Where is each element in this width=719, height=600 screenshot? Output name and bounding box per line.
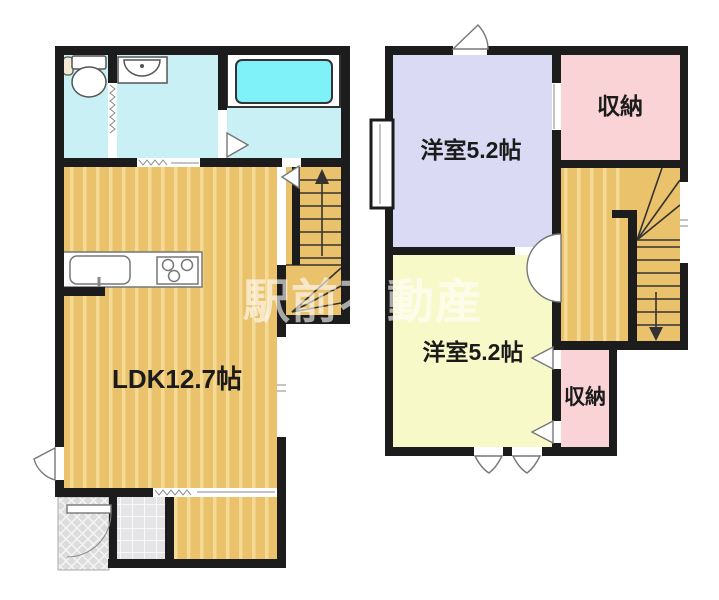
top-window-icon xyxy=(453,25,488,49)
bathroom-doorway xyxy=(218,110,227,158)
floorplan-image: LDK12.7帖 xyxy=(0,0,719,600)
watermark-text: 駅前不動産 xyxy=(243,275,483,328)
awning-window-icon xyxy=(475,456,502,473)
room-label-closet-bottom: 収納 xyxy=(564,385,606,409)
washbasin-icon xyxy=(118,57,167,83)
window-icon xyxy=(277,337,286,437)
room-label-bedroom-bottom: 洋室5.2帖 xyxy=(423,339,524,365)
bathtub-icon xyxy=(227,52,340,107)
closet-sliding-door-icon xyxy=(552,83,561,130)
awning-window-icon xyxy=(513,456,540,473)
stove-icon xyxy=(157,257,198,284)
hall-2f xyxy=(561,168,628,341)
side-door-icon xyxy=(34,448,55,480)
room-label-ldk: LDK12.7帖 xyxy=(112,364,242,394)
window-icon xyxy=(680,182,688,263)
room-entry-hall xyxy=(174,497,277,559)
floorplan-page: LDK12.7帖 xyxy=(0,0,719,600)
room-label-closet-top: 収納 xyxy=(597,93,643,119)
room-label-bedroom-top: 洋室5.2帖 xyxy=(421,137,522,163)
kitchen-counter-icon xyxy=(62,252,202,291)
window-icon xyxy=(371,120,393,208)
floor2-plan: 洋室5.2帖 収納 洋室5.2帖 収納 xyxy=(371,25,688,473)
room-entry-genkan xyxy=(117,497,165,559)
